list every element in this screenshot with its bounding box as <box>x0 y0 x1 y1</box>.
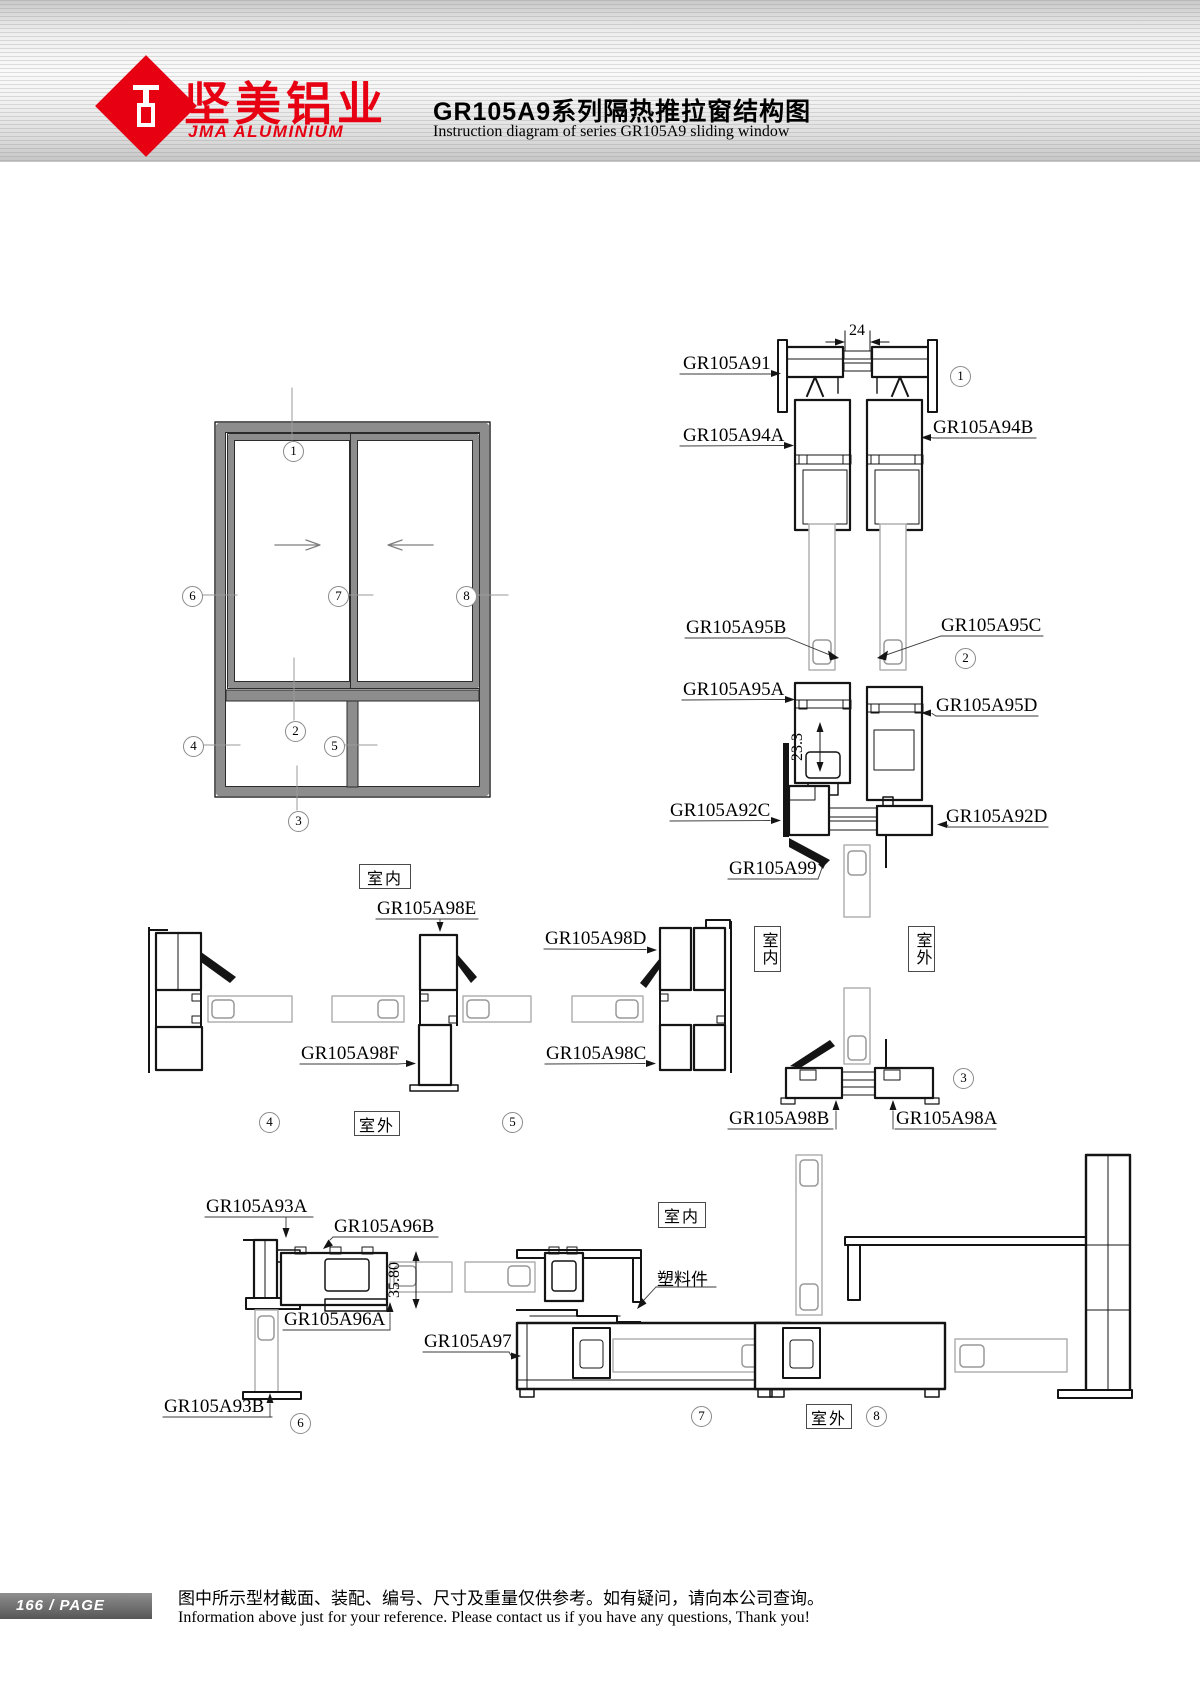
part-label-gr105a96a: GR105A96A <box>284 1309 385 1331</box>
glass-band-bottom-mid <box>613 1339 770 1372</box>
detail-mark-8: 8 <box>866 1406 887 1427</box>
part-label-gr105a97: GR105A97 <box>424 1331 512 1353</box>
section5-stile-detail <box>640 920 731 1072</box>
glass-upper <box>809 524 906 670</box>
footer-note-chinese: 图中所示型材截面、装配、编号、尺寸及重量仅供参考。如有疑问，请向本公司查询。 <box>178 1584 824 1609</box>
glass-vertical-right <box>796 1155 822 1315</box>
footer-note-english: Information above just for your referenc… <box>178 1609 810 1627</box>
elevation-mark-6: 6 <box>182 586 203 607</box>
page-number-badge: 166 / PAGE <box>0 1593 152 1619</box>
elevation-mark-7: 7 <box>328 586 349 607</box>
part-label-gr105a98d: GR105A98D <box>545 928 646 950</box>
part-label-gr105a98c: GR105A98C <box>546 1043 646 1065</box>
part-label-gr105a93b: GR105A93B <box>164 1396 264 1418</box>
detail-mark-7: 7 <box>691 1406 712 1427</box>
part-label-gr105a95c: GR105A95C <box>941 615 1041 637</box>
elevation-mark-8: 8 <box>456 586 477 607</box>
elevation-mark-3: 3 <box>288 811 309 832</box>
detail-mark-4: 4 <box>259 1112 280 1133</box>
section1-head-detail <box>778 340 937 670</box>
part-label-gr105a95b: GR105A95B <box>686 617 786 639</box>
catalog-page: 坚美铝业 JMA ALUMINIUM GR105A9系列隔热推拉窗结构图 Ins… <box>0 0 1200 1697</box>
part-label-gr105a96b: GR105A96B <box>334 1216 434 1238</box>
detail-mark-6: 6 <box>290 1413 311 1434</box>
dimension-23-3: 23.3 <box>789 724 807 770</box>
outdoor-label-right: 室外 <box>908 926 935 972</box>
elevation-mark-4: 4 <box>183 736 204 757</box>
detail-mark-1: 1 <box>950 366 971 387</box>
part-label-gr105a92c: GR105A92C <box>670 800 770 822</box>
glass-fixed-upper <box>844 845 870 1064</box>
part-label-gr105a98b: GR105A98B <box>729 1108 829 1130</box>
part-label-gr105a98e: GR105A98E <box>377 898 476 920</box>
part-label-gr105a92d: GR105A92D <box>946 806 1047 828</box>
part-label-gr105a93a: GR105A93A <box>206 1196 307 1218</box>
part-label-gr105a94b: GR105A94B <box>933 417 1033 439</box>
indoor-label-right: 室内 <box>754 926 781 972</box>
part-label-gr105a99: GR105A99 <box>729 858 817 880</box>
outdoor-label-mid: 室外 <box>354 1111 400 1136</box>
technical-drawing-canvas <box>0 0 1200 1697</box>
elevation-mark-5: 5 <box>324 736 345 757</box>
part-label-gr105a95a: GR105A95A <box>683 679 784 701</box>
dimension-35-80: 35.80 <box>386 1253 404 1307</box>
glass-band-bottom-right <box>955 1339 1067 1372</box>
section8-sill-detail <box>755 1155 1132 1398</box>
part-label-gr105a94a: GR105A94A <box>683 425 784 447</box>
interlock-profile-detail <box>410 935 643 1091</box>
dimension-24: 24 <box>843 322 871 340</box>
indoor-label-mid: 室内 <box>359 864 411 889</box>
part-label-plastic-part: 塑料件 <box>657 1265 708 1290</box>
indoor-label-bottom: 室内 <box>658 1202 706 1228</box>
part-label-gr105a98a: GR105A98A <box>896 1108 997 1130</box>
elevation-mark-2: 2 <box>285 721 306 742</box>
outdoor-label-bottom: 室外 <box>806 1404 852 1429</box>
section7-sill-detail <box>517 1247 790 1397</box>
part-label-gr105a91: GR105A91 <box>683 353 771 375</box>
elevation-mark-1: 1 <box>283 441 304 462</box>
part-label-gr105a95d: GR105A95D <box>936 695 1037 717</box>
part-label-gr105a98f: GR105A98F <box>301 1043 399 1065</box>
detail-mark-5: 5 <box>502 1112 523 1133</box>
glass-band-left <box>208 996 404 1022</box>
detail-mark-2: 2 <box>955 648 976 669</box>
glass-band-mid <box>463 996 643 1022</box>
detail-mark-3: 3 <box>953 1068 974 1089</box>
